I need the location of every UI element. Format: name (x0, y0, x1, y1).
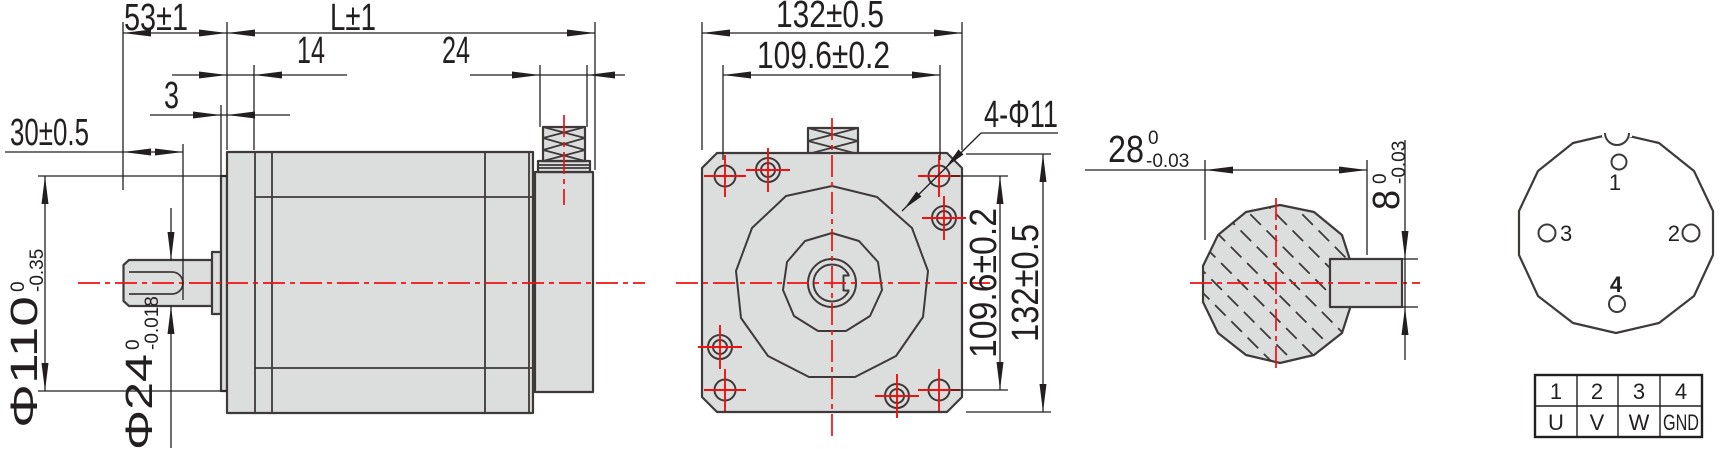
dim-phi110-tol-upper: 0 (8, 281, 29, 292)
holes-callout-label: 4-Φ11 (984, 94, 1058, 136)
dim-109-right-label: 109.6±0.2 (963, 208, 1005, 358)
front-view: 132±0.5 109.6±0.2 4-Φ11 109.6± (676, 0, 1058, 440)
table-value-u: U (1548, 410, 1564, 435)
connector-face (1519, 133, 1713, 333)
pin-4-label: 4 (1610, 272, 1623, 297)
dim-30-label: 30±0.5 (10, 112, 89, 154)
motor-technical-drawing: 53±1 L±1 14 24 3 (0, 0, 1721, 449)
table-header-4: 4 (1675, 379, 1687, 404)
dim-connector-width: 24 (442, 30, 625, 127)
dim-L-label: L±1 (330, 0, 376, 39)
dim-14-label: 14 (297, 30, 325, 72)
dim-24-label: 24 (442, 30, 470, 72)
dim-front-plate: 14 (172, 30, 347, 150)
dim-phi110-tol-lower: -0.35 (27, 249, 48, 292)
dim-3-label: 3 (164, 75, 179, 117)
dim-phi24-tol-upper: 0 (123, 339, 144, 350)
dim-8-tol-upper: 0 (1370, 173, 1391, 184)
dim-shaft-dia: Φ24 0 -0.018 (119, 208, 175, 449)
dim-53-label: 53±1 (124, 0, 188, 39)
front-connector (808, 128, 858, 154)
table-header-3: 3 (1633, 379, 1645, 404)
dim-key-width: 8 0 -0.03 (1366, 140, 1418, 360)
table-header-1: 1 (1550, 379, 1562, 404)
dim-phi24-tol-lower: -0.018 (142, 296, 163, 350)
dim-28-label: 28 (1108, 129, 1144, 171)
dim-8-tol-lower: -0.03 (1389, 141, 1410, 184)
dim-132-right-label: 132±0.5 (1005, 224, 1047, 342)
dim-28-tol-lower: -0.03 (1146, 151, 1189, 172)
side-view: 53±1 L±1 14 24 3 (4, 0, 645, 449)
dim-phi110-label: Φ110 (4, 296, 46, 428)
shaft-section-view: 28 0 -0.03 8 0 -0.03 (1085, 128, 1466, 380)
pin-2-label: 2 (1668, 221, 1680, 246)
dim-8-label: 8 (1366, 190, 1408, 210)
table-value-v: V (1590, 410, 1605, 435)
dim-109-top-label: 109.6±0.2 (757, 35, 890, 77)
dim-phi24-label: Φ24 (119, 354, 161, 449)
notch-mask (1602, 127, 1632, 137)
wiring-table: 1 2 3 4 U V W GND (1535, 375, 1702, 437)
table-header-2: 2 (1591, 379, 1603, 404)
dim-28-tol-upper: 0 (1148, 128, 1159, 149)
dim-132-top-label: 132±0.5 (776, 0, 884, 36)
table-value-w: W (1629, 410, 1650, 435)
pin-3-label: 3 (1560, 221, 1572, 246)
technical-drawing-page: 53±1 L±1 14 24 3 (0, 0, 1721, 449)
pin-1-label: 1 (1609, 170, 1621, 195)
table-value-gnd: GND (1663, 410, 1699, 435)
connector-view: 1 2 3 4 (1519, 127, 1713, 333)
